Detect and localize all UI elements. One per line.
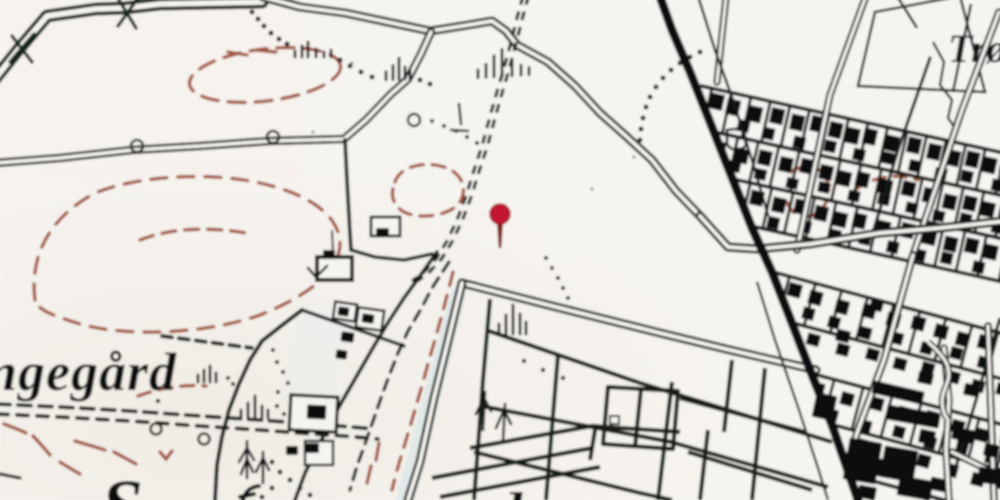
svg-text:S: S xyxy=(101,465,143,500)
svg-text:d: d xyxy=(492,481,523,500)
svg-text:ngegård: ngegård xyxy=(0,342,177,402)
